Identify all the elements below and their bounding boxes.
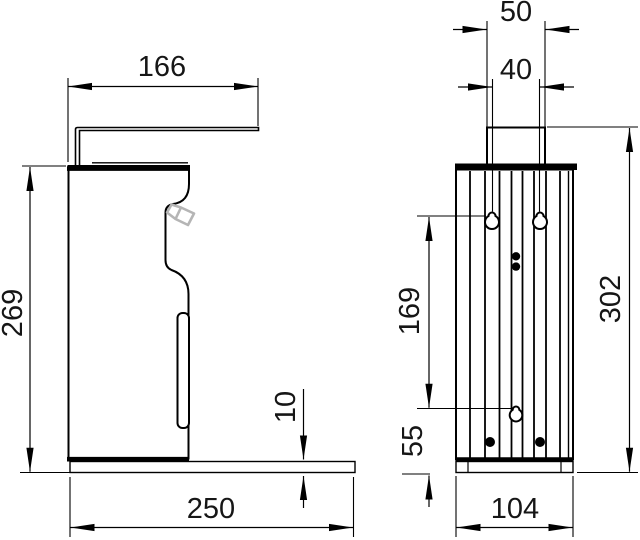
dim-arm-length-label: 166 xyxy=(138,51,186,83)
side-access-window xyxy=(178,313,190,428)
bottom-dot-right xyxy=(535,437,545,447)
dim-hole-spacing-x: 40 xyxy=(458,54,574,87)
dim-base-thickness-label: 10 xyxy=(270,391,302,423)
side-base-plate xyxy=(70,462,355,473)
dim-body-width-label: 104 xyxy=(491,493,539,525)
dim-body-width: 104 xyxy=(456,476,573,537)
wall-bracket xyxy=(487,128,545,166)
dim-base-thickness: 10 xyxy=(270,389,304,508)
technical-drawing-canvas: 166 269 10 250 xyxy=(0,0,640,540)
dim-bracket-width-label: 50 xyxy=(500,0,532,28)
front-top-cap xyxy=(455,164,577,171)
dimension-drawing: 166 269 10 250 xyxy=(0,0,640,540)
bottom-dot-left xyxy=(485,437,495,447)
dim-hole-to-base: 55 xyxy=(397,425,430,507)
center-dot-upper xyxy=(512,252,520,260)
dispenser-front-view xyxy=(455,79,577,473)
dim-hole-spacing-y-label: 169 xyxy=(394,287,426,335)
dim-total-height-label: 302 xyxy=(595,275,627,323)
dim-arm-length: 166 xyxy=(68,51,258,162)
dispenser-side-view xyxy=(67,128,355,473)
dim-hole-to-base-label: 55 xyxy=(397,425,429,457)
lever-arm xyxy=(76,128,259,167)
dim-hole-spacing-x-label: 40 xyxy=(500,54,532,86)
side-body-outline xyxy=(69,166,190,459)
dim-body-height-label: 269 xyxy=(0,289,29,337)
dim-base-depth-label: 250 xyxy=(187,493,235,525)
dim-body-height: 269 xyxy=(0,166,70,473)
pump-spout xyxy=(167,205,194,226)
dim-base-depth: 250 xyxy=(70,477,354,537)
center-dot-lower xyxy=(512,262,520,270)
front-base-plate xyxy=(456,462,573,473)
